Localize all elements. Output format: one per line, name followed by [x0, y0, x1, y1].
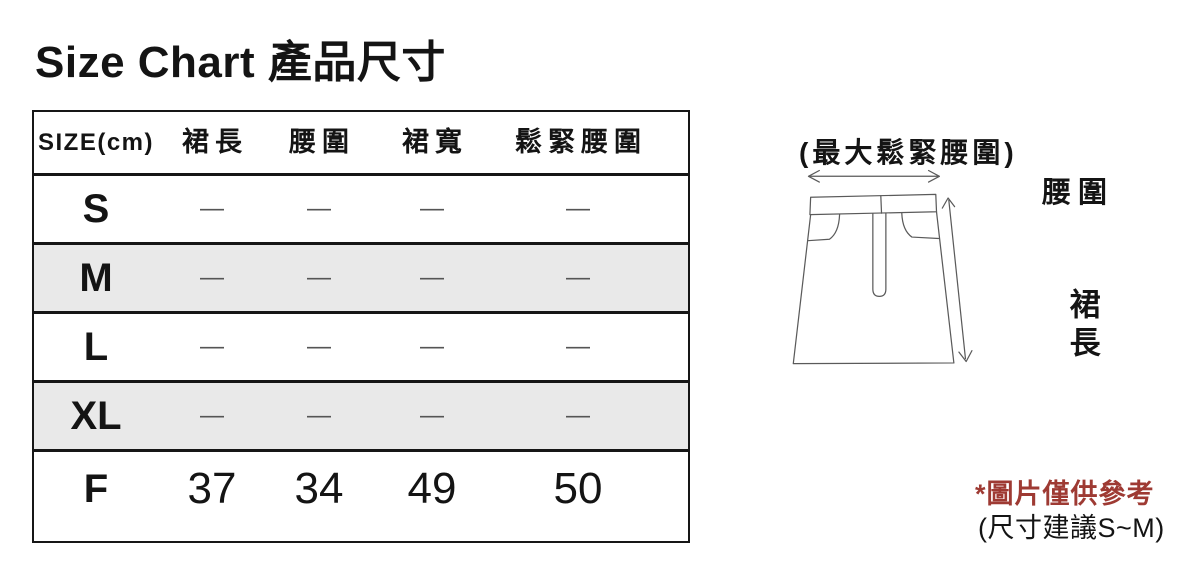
value-cell: 50 [492, 467, 688, 511]
value-cell: — [158, 266, 266, 290]
value-cell: — [372, 266, 492, 290]
size-suggestion-note: (尺寸建議S~M) [978, 513, 1165, 544]
skirt-outline [793, 194, 954, 363]
waist-label: 腰圍 [1042, 177, 1114, 210]
size-cell: XL [34, 396, 158, 436]
table-row-m: M — — — — [34, 245, 688, 314]
column-header-elastic-waist: 鬆緊腰圍 [492, 129, 688, 156]
value-cell: 34 [266, 467, 372, 511]
value-cell: — [158, 197, 266, 221]
length-arrow-icon [942, 198, 972, 361]
table-row-xl: XL — — — — [34, 383, 688, 452]
column-header-skirt-length: 裙長 [158, 129, 266, 156]
value-cell: 37 [158, 467, 266, 511]
value-cell: — [158, 335, 266, 359]
size-cell: L [34, 327, 158, 367]
value-cell: — [266, 404, 372, 428]
value-cell: — [266, 335, 372, 359]
value-cell: 49 [372, 467, 492, 511]
page-title: Size Chart 產品尺寸 [35, 26, 446, 90]
table-row-f: F 37 34 49 50 [34, 452, 688, 526]
size-header-cell: SIZE(cm) [34, 131, 158, 155]
value-cell: — [492, 404, 688, 428]
reference-note: *圖片僅供參考 [975, 479, 1155, 510]
value-cell: — [492, 197, 688, 221]
column-header-waist: 腰圍 [266, 129, 372, 156]
skirt-length-label: 裙長 [1064, 288, 1100, 364]
size-cell: F [34, 469, 158, 509]
value-cell: — [372, 335, 492, 359]
value-cell: — [492, 266, 688, 290]
column-header-skirt-width: 裙寬 [372, 129, 492, 156]
value-cell: — [158, 404, 266, 428]
table-row-l: L — — — — [34, 314, 688, 383]
size-table: SIZE(cm) 裙長 腰圍 裙寬 鬆緊腰圍 S — — — — M — — —… [32, 110, 690, 543]
value-cell: — [492, 335, 688, 359]
skirt-diagram [760, 130, 1200, 470]
waist-arrow-icon [808, 171, 939, 183]
size-cell: M [34, 258, 158, 298]
max-elastic-waist-label: (最大鬆緊腰圍) [799, 137, 1018, 169]
table-row-s: S — — — — [34, 176, 688, 245]
size-cell: S [34, 189, 158, 229]
value-cell: — [372, 404, 492, 428]
value-cell: — [266, 266, 372, 290]
value-cell: — [372, 197, 492, 221]
value-cell: — [266, 197, 372, 221]
header-row: SIZE(cm) 裙長 腰圍 裙寬 鬆緊腰圍 [34, 112, 688, 176]
